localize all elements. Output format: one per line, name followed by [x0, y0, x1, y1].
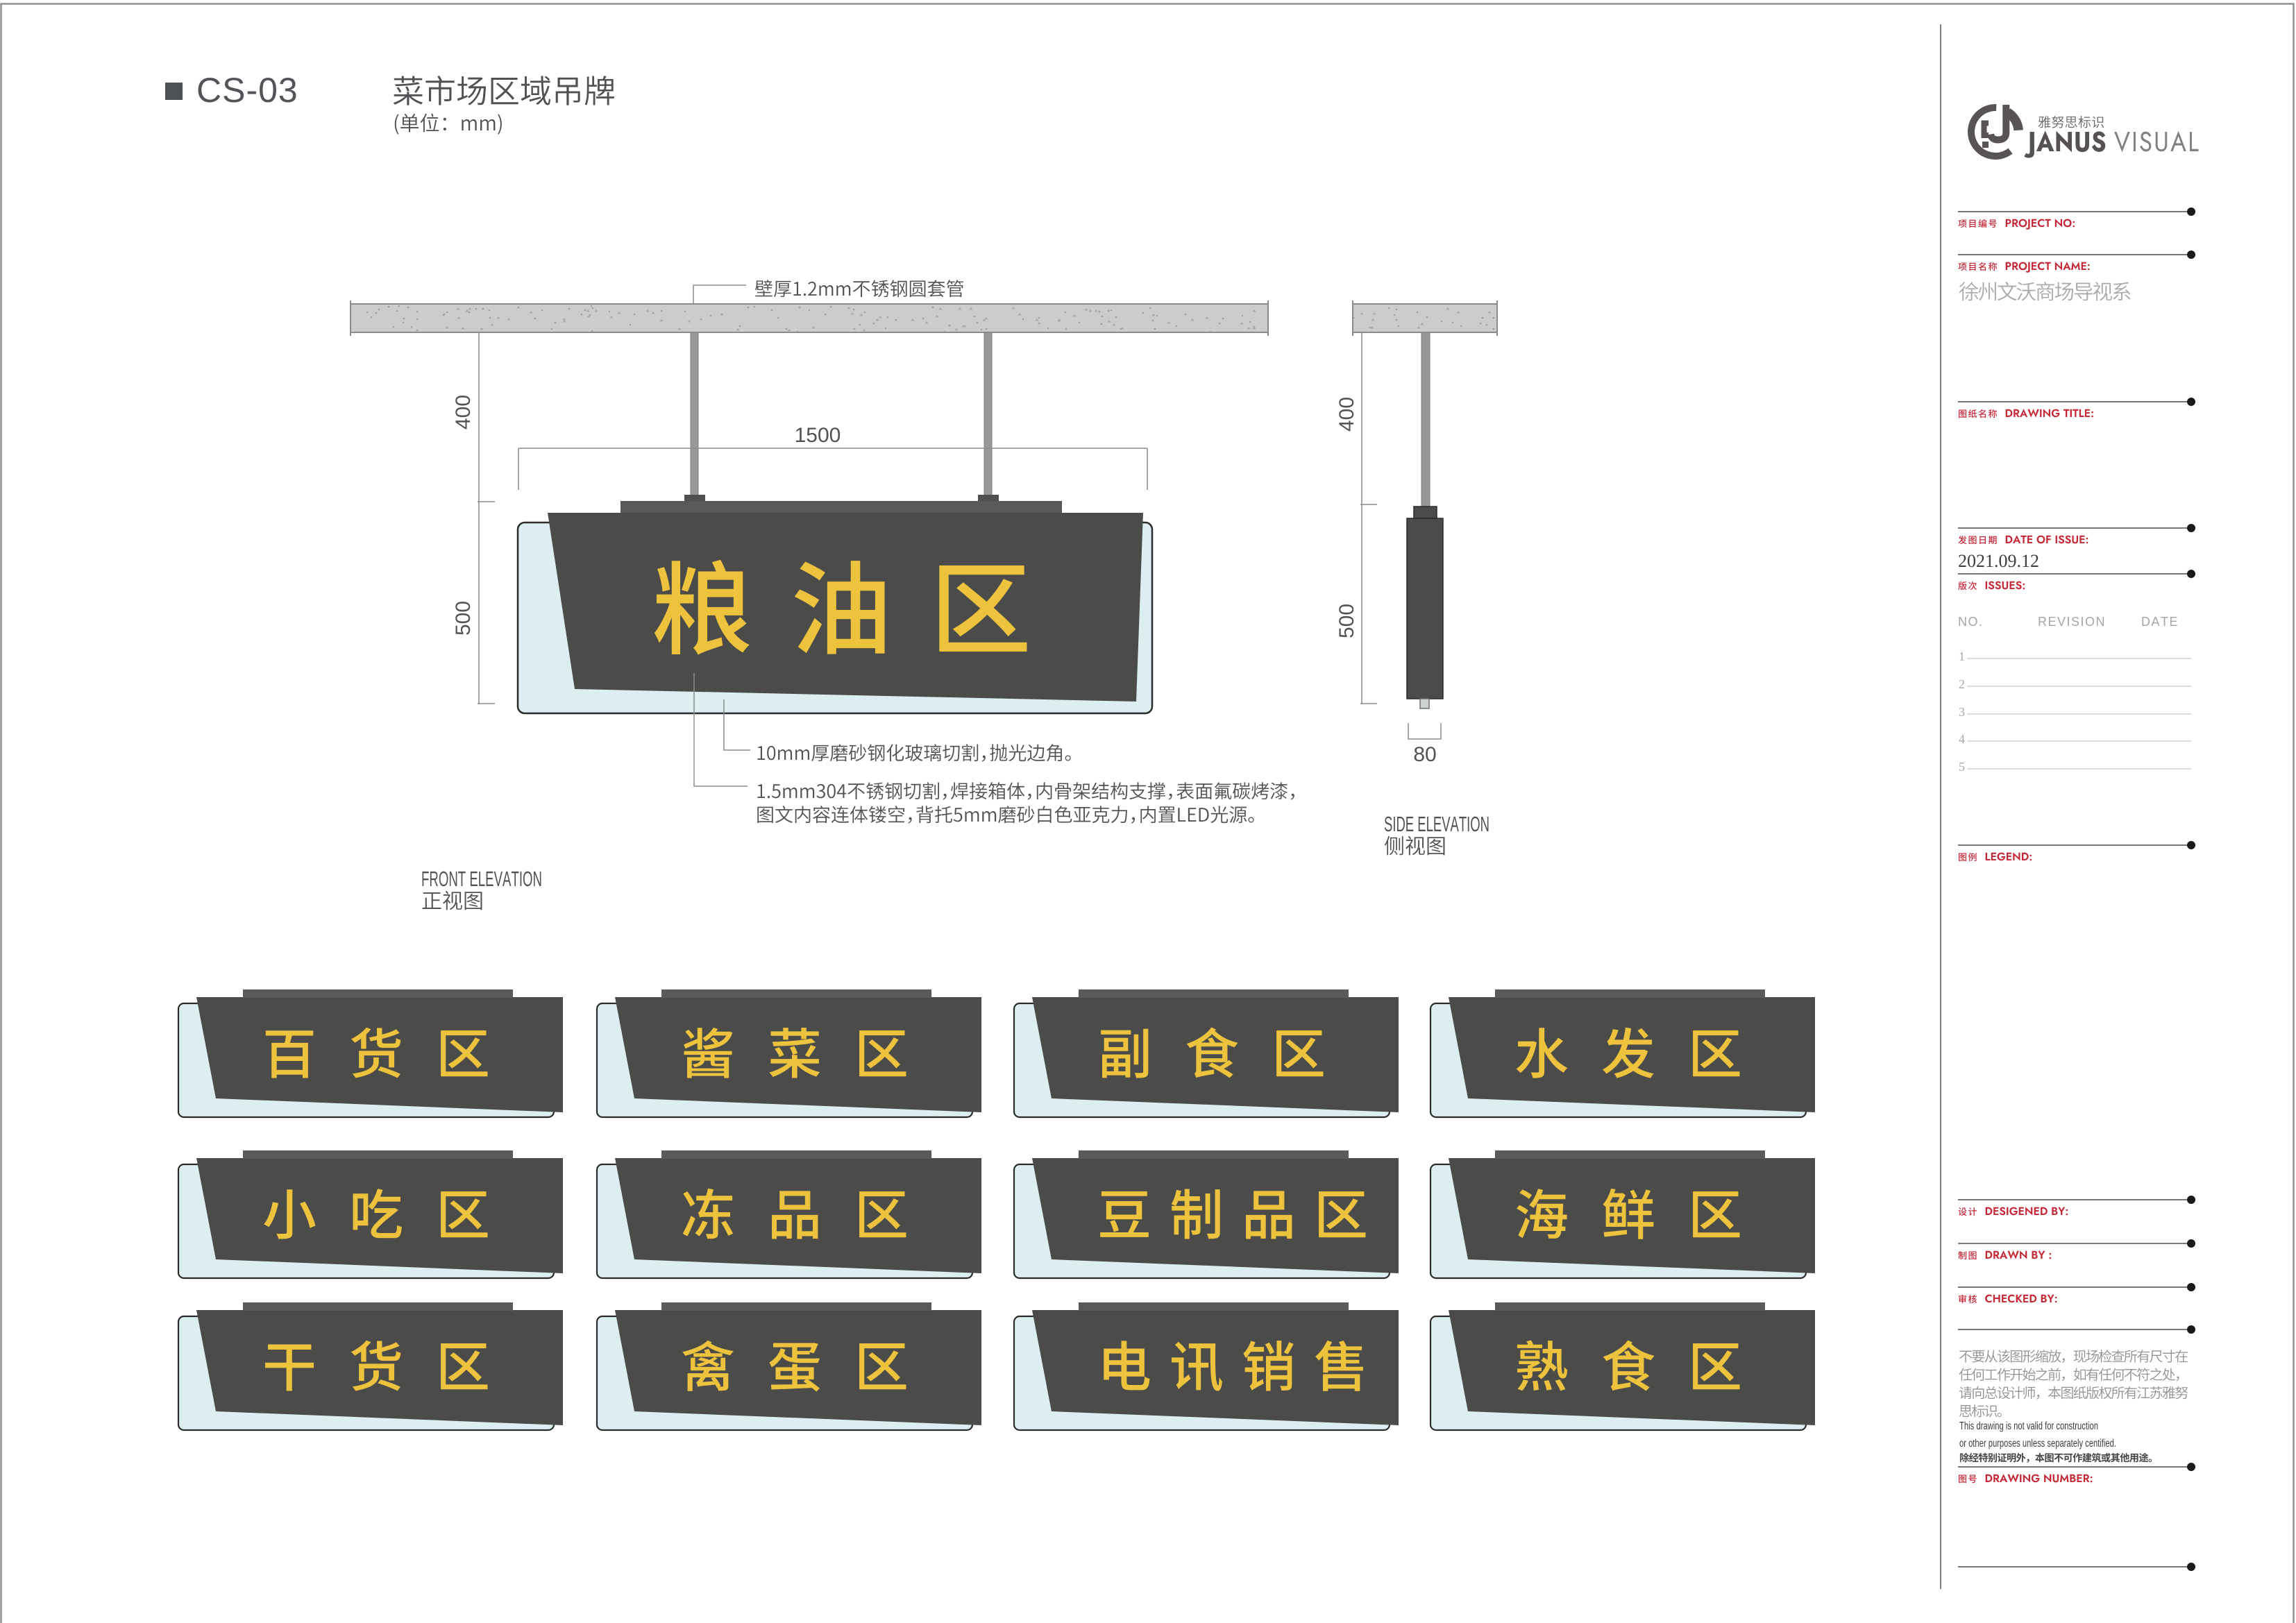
- svg-text:or other purposes unless separ: or other purposes unless separately cent…: [1959, 1438, 2116, 1450]
- svg-text:500: 500: [452, 601, 475, 636]
- svg-text:400: 400: [452, 395, 475, 430]
- svg-text:3: 3: [1959, 705, 1965, 719]
- svg-text:DATE: DATE: [2141, 615, 2179, 629]
- svg-text:80: 80: [1413, 743, 1436, 766]
- svg-text:1500: 1500: [795, 424, 841, 447]
- svg-text:5: 5: [1959, 760, 1965, 774]
- svg-text:400: 400: [1335, 397, 1358, 432]
- svg-text:NO.: NO.: [1958, 615, 1984, 629]
- svg-text:This drawing is not valid for: This drawing is not valid for constructi…: [1959, 1420, 2098, 1432]
- svg-text:2021.09.12: 2021.09.12: [1958, 551, 2039, 571]
- svg-text:2: 2: [1959, 677, 1965, 691]
- svg-text:REVISION: REVISION: [2038, 615, 2106, 629]
- svg-text:FRONT ELEVATION: FRONT ELEVATION: [421, 867, 542, 891]
- svg-text:500: 500: [1335, 604, 1358, 638]
- svg-text:1: 1: [1959, 649, 1965, 663]
- svg-text:SIDE ELEVATION: SIDE ELEVATION: [1384, 812, 1489, 836]
- svg-text:4: 4: [1959, 732, 1965, 746]
- svg-text:CS-03: CS-03: [196, 71, 298, 110]
